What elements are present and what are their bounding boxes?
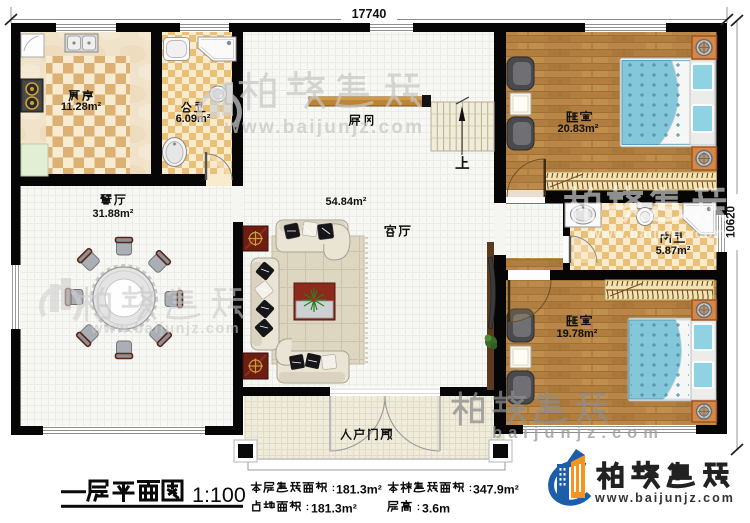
svg-text:31.88m²: 31.88m²	[93, 208, 134, 220]
svg-text:3.6m: 3.6m	[422, 502, 450, 516]
svg-text:54.84m²: 54.84m²	[326, 196, 367, 208]
svg-text:181.3m²: 181.3m²	[311, 502, 357, 516]
svg-text:www.baijunjz.com: www.baijunjz.com	[589, 225, 727, 241]
svg-text:10620: 10620	[726, 206, 738, 238]
svg-text:6.09m²: 6.09m²	[176, 113, 211, 125]
svg-text:1:100: 1:100	[192, 483, 246, 507]
svg-text:baijunjz.com: baijunjz.com	[492, 424, 664, 442]
svg-text:5.87m²: 5.87m²	[656, 245, 691, 257]
svg-text:181.3m²: 181.3m²	[336, 483, 382, 497]
svg-text:17740: 17740	[352, 7, 387, 21]
svg-text:11.28m²: 11.28m²	[61, 101, 102, 113]
svg-text:www.baijunjz.com: www.baijunjz.com	[224, 117, 424, 138]
svg-text:20.83m²: 20.83m²	[558, 123, 599, 135]
svg-text:www.baijunjz.com: www.baijunjz.com	[90, 321, 240, 337]
svg-text:www.baijunjz.com: www.baijunjz.com	[594, 491, 735, 505]
svg-text:19.78m²: 19.78m²	[557, 328, 598, 340]
svg-text:347.9m²: 347.9m²	[473, 483, 519, 497]
